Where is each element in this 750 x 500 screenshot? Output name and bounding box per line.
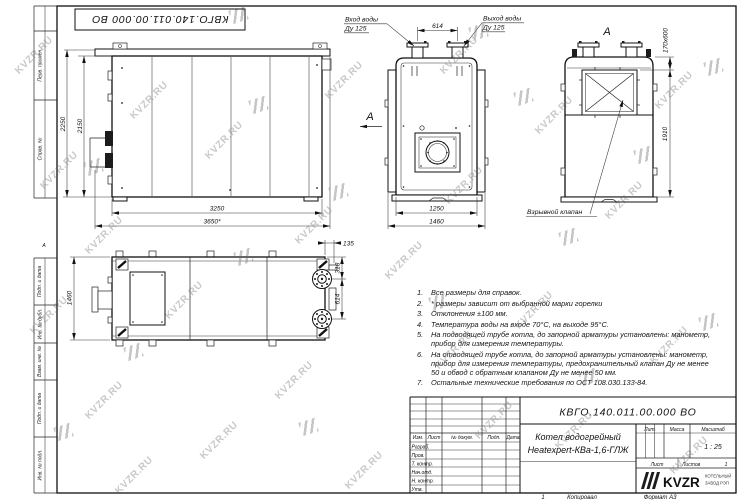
note-number: 1. <box>417 288 431 297</box>
outlet-label: Выход воды <box>483 15 521 23</box>
note-number: 5. <box>417 330 431 348</box>
note-number: 4. <box>417 320 431 329</box>
dim-3250: 3250 <box>210 206 225 213</box>
zone-marker: А <box>41 243 46 249</box>
technical-notes: 1.Все размеры для справок. 2.* размеры з… <box>417 288 717 389</box>
note-text: Отклонения ±100 мм. <box>431 309 717 318</box>
explosion-valve-hatch <box>579 67 640 118</box>
strip-inv-podl: Инв. № подл. <box>38 449 44 480</box>
left-attribute-strip-bottom: Подп. и дата Инв. № дубл. Взам. инв. № П… <box>34 258 57 493</box>
scale-value: 1 : 25 <box>704 444 722 451</box>
section-arrow: А <box>360 111 382 127</box>
pipe-flange-top <box>313 270 332 289</box>
copy-number: 1 <box>541 495 544 500</box>
drawing-sheet: Перв. примен. Справ. № А Подп. и дата Ин… <box>0 0 750 500</box>
dim-2250: 2250 <box>60 116 67 132</box>
note-number: 7. <box>417 378 431 387</box>
note-number: 6. <box>417 350 431 377</box>
front-view: Вход воды Ду 125 Выход воды Ду 125 А 614 <box>344 15 524 230</box>
company-name-line1: КОТЕЛЬНЫЙ <box>705 474 731 479</box>
col-izm: Изм. <box>413 435 424 441</box>
row-utv: Утв. <box>412 487 423 493</box>
inlet-label: Вход воды <box>345 16 378 24</box>
company-logo: KVZR КОТЕЛЬНЫЙ ЗАВОД РЭП <box>641 472 731 490</box>
scale-label: Масштаб <box>701 427 725 433</box>
dim-3650: 3650* <box>204 219 221 226</box>
row-nachotd: Нач.отд. <box>412 470 433 476</box>
outlet-dn-label: Ду 125 <box>482 25 505 32</box>
note-item: 7.Остальные технические требования по ОС… <box>417 378 717 387</box>
dim-614-top: 614 <box>432 23 443 30</box>
top-designation-text: КВГО.140.011.00.000 ВО <box>91 13 228 25</box>
note-item: 3.Отклонения ±100 мм. <box>417 309 717 318</box>
note-item: 6.На отводящей трубе котла, до запорной … <box>417 350 717 377</box>
inlet-dn-label: Ду 125 <box>344 26 367 33</box>
company-name-line2: ЗАВОД РЭП <box>705 481 729 486</box>
mass-label: Масса <box>670 427 685 433</box>
strip-inv-dubl: Инв. № дубл. <box>38 309 44 340</box>
strip-perv-primen: Перв. примен. <box>38 48 44 81</box>
dim-170x600: 170х600 <box>663 28 670 53</box>
left-attribute-strip-top: Перв. примен. Справ. № <box>34 6 57 198</box>
strip-podp-data-2: Подп. и дата <box>37 393 43 425</box>
note-number: 2. <box>417 299 431 308</box>
note-item: 2.* размеры зависит от выбранной марки г… <box>417 299 717 308</box>
note-text: Температура воды на входе 70°С, на выход… <box>431 320 717 329</box>
dim-135: 135 <box>343 241 354 248</box>
dim-1250: 1250 <box>429 206 444 213</box>
note-number: 3. <box>417 309 431 318</box>
strip-podp-data-1: Подп. и дата <box>37 266 43 298</box>
side-view: 2250 2150 3250 3650* <box>60 43 331 229</box>
company-logo-text: KVZR <box>663 475 700 490</box>
product-name-line1: Котел водогрейный <box>535 432 621 442</box>
format-label: Формат А3 <box>644 495 677 500</box>
note-text: На подводящей трубе котла, до запорной а… <box>431 330 717 348</box>
note-item: 5.На подводящей трубе котла, до запорной… <box>417 330 717 348</box>
sheets-label: Листов <box>681 462 701 468</box>
top-designation-box: КВГО.140.011.00.000 ВО <box>75 9 245 30</box>
strip-sprav-no: Справ. № <box>38 137 44 160</box>
dim-614-plan: 614 <box>335 293 342 304</box>
plan-view: 1460 135 318 614 <box>67 240 355 346</box>
dim-318: 318 <box>335 262 342 273</box>
note-text: Остальные технические требования по ОСТ … <box>431 378 717 387</box>
col-list: Лист <box>427 435 441 441</box>
dim-1460-plan: 1460 <box>67 290 74 305</box>
sheets-value: 1 <box>724 462 727 468</box>
col-date: Дата <box>505 435 519 441</box>
note-text: * размеры зависит от выбранной марки гор… <box>431 299 717 308</box>
rear-view: А 170х600 <box>526 26 674 217</box>
outlet-callout: Выход воды Ду 125 <box>464 15 524 47</box>
inlet-callout: Вход воды Ду 125 <box>344 16 414 47</box>
burner-plate <box>415 133 460 172</box>
dim-1460-front: 1460 <box>429 219 444 226</box>
titleblock-designation: КВГО.140.011.00.000 ВО <box>559 407 696 419</box>
lit-label: Лит. <box>643 427 656 433</box>
strip-vzam-inv: Взам. инв. № <box>37 345 43 377</box>
product-name-line2: Heatexpert-КВа-1,6-ГЛЖ <box>528 445 630 455</box>
sheet-label: Лист <box>650 462 664 468</box>
title-block: КВГО.140.011.00.000 ВО Котел водогрейный… <box>410 397 736 500</box>
col-doc: № докум. <box>451 435 473 441</box>
note-text: Все размеры для справок. <box>431 288 717 297</box>
col-sign: Подп. <box>487 435 500 441</box>
dim-2150: 2150 <box>77 118 84 134</box>
section-arrow-label: А <box>365 111 373 123</box>
view-a-label: А <box>602 26 610 38</box>
note-text: На отводящей трубе котла, до запорной ар… <box>431 350 717 377</box>
copied-label: Копировал <box>567 495 597 500</box>
explosion-valve-label: Взрывной клапан <box>527 208 582 216</box>
row-tkontr: Т. контр. <box>412 462 434 468</box>
row-nkontr: Н. контр. <box>412 479 435 485</box>
row-razrab: Разраб. <box>412 445 430 451</box>
pipe-flange-bottom <box>313 310 332 329</box>
note-item: 4.Температура воды на входе 70°С, на вых… <box>417 320 717 329</box>
row-prov: Пров. <box>412 453 425 459</box>
drawing-linework: Перв. примен. Справ. № А Подп. и дата Ин… <box>0 0 750 500</box>
dim-1910: 1910 <box>662 126 669 141</box>
note-item: 1.Все размеры для справок. <box>417 288 717 297</box>
